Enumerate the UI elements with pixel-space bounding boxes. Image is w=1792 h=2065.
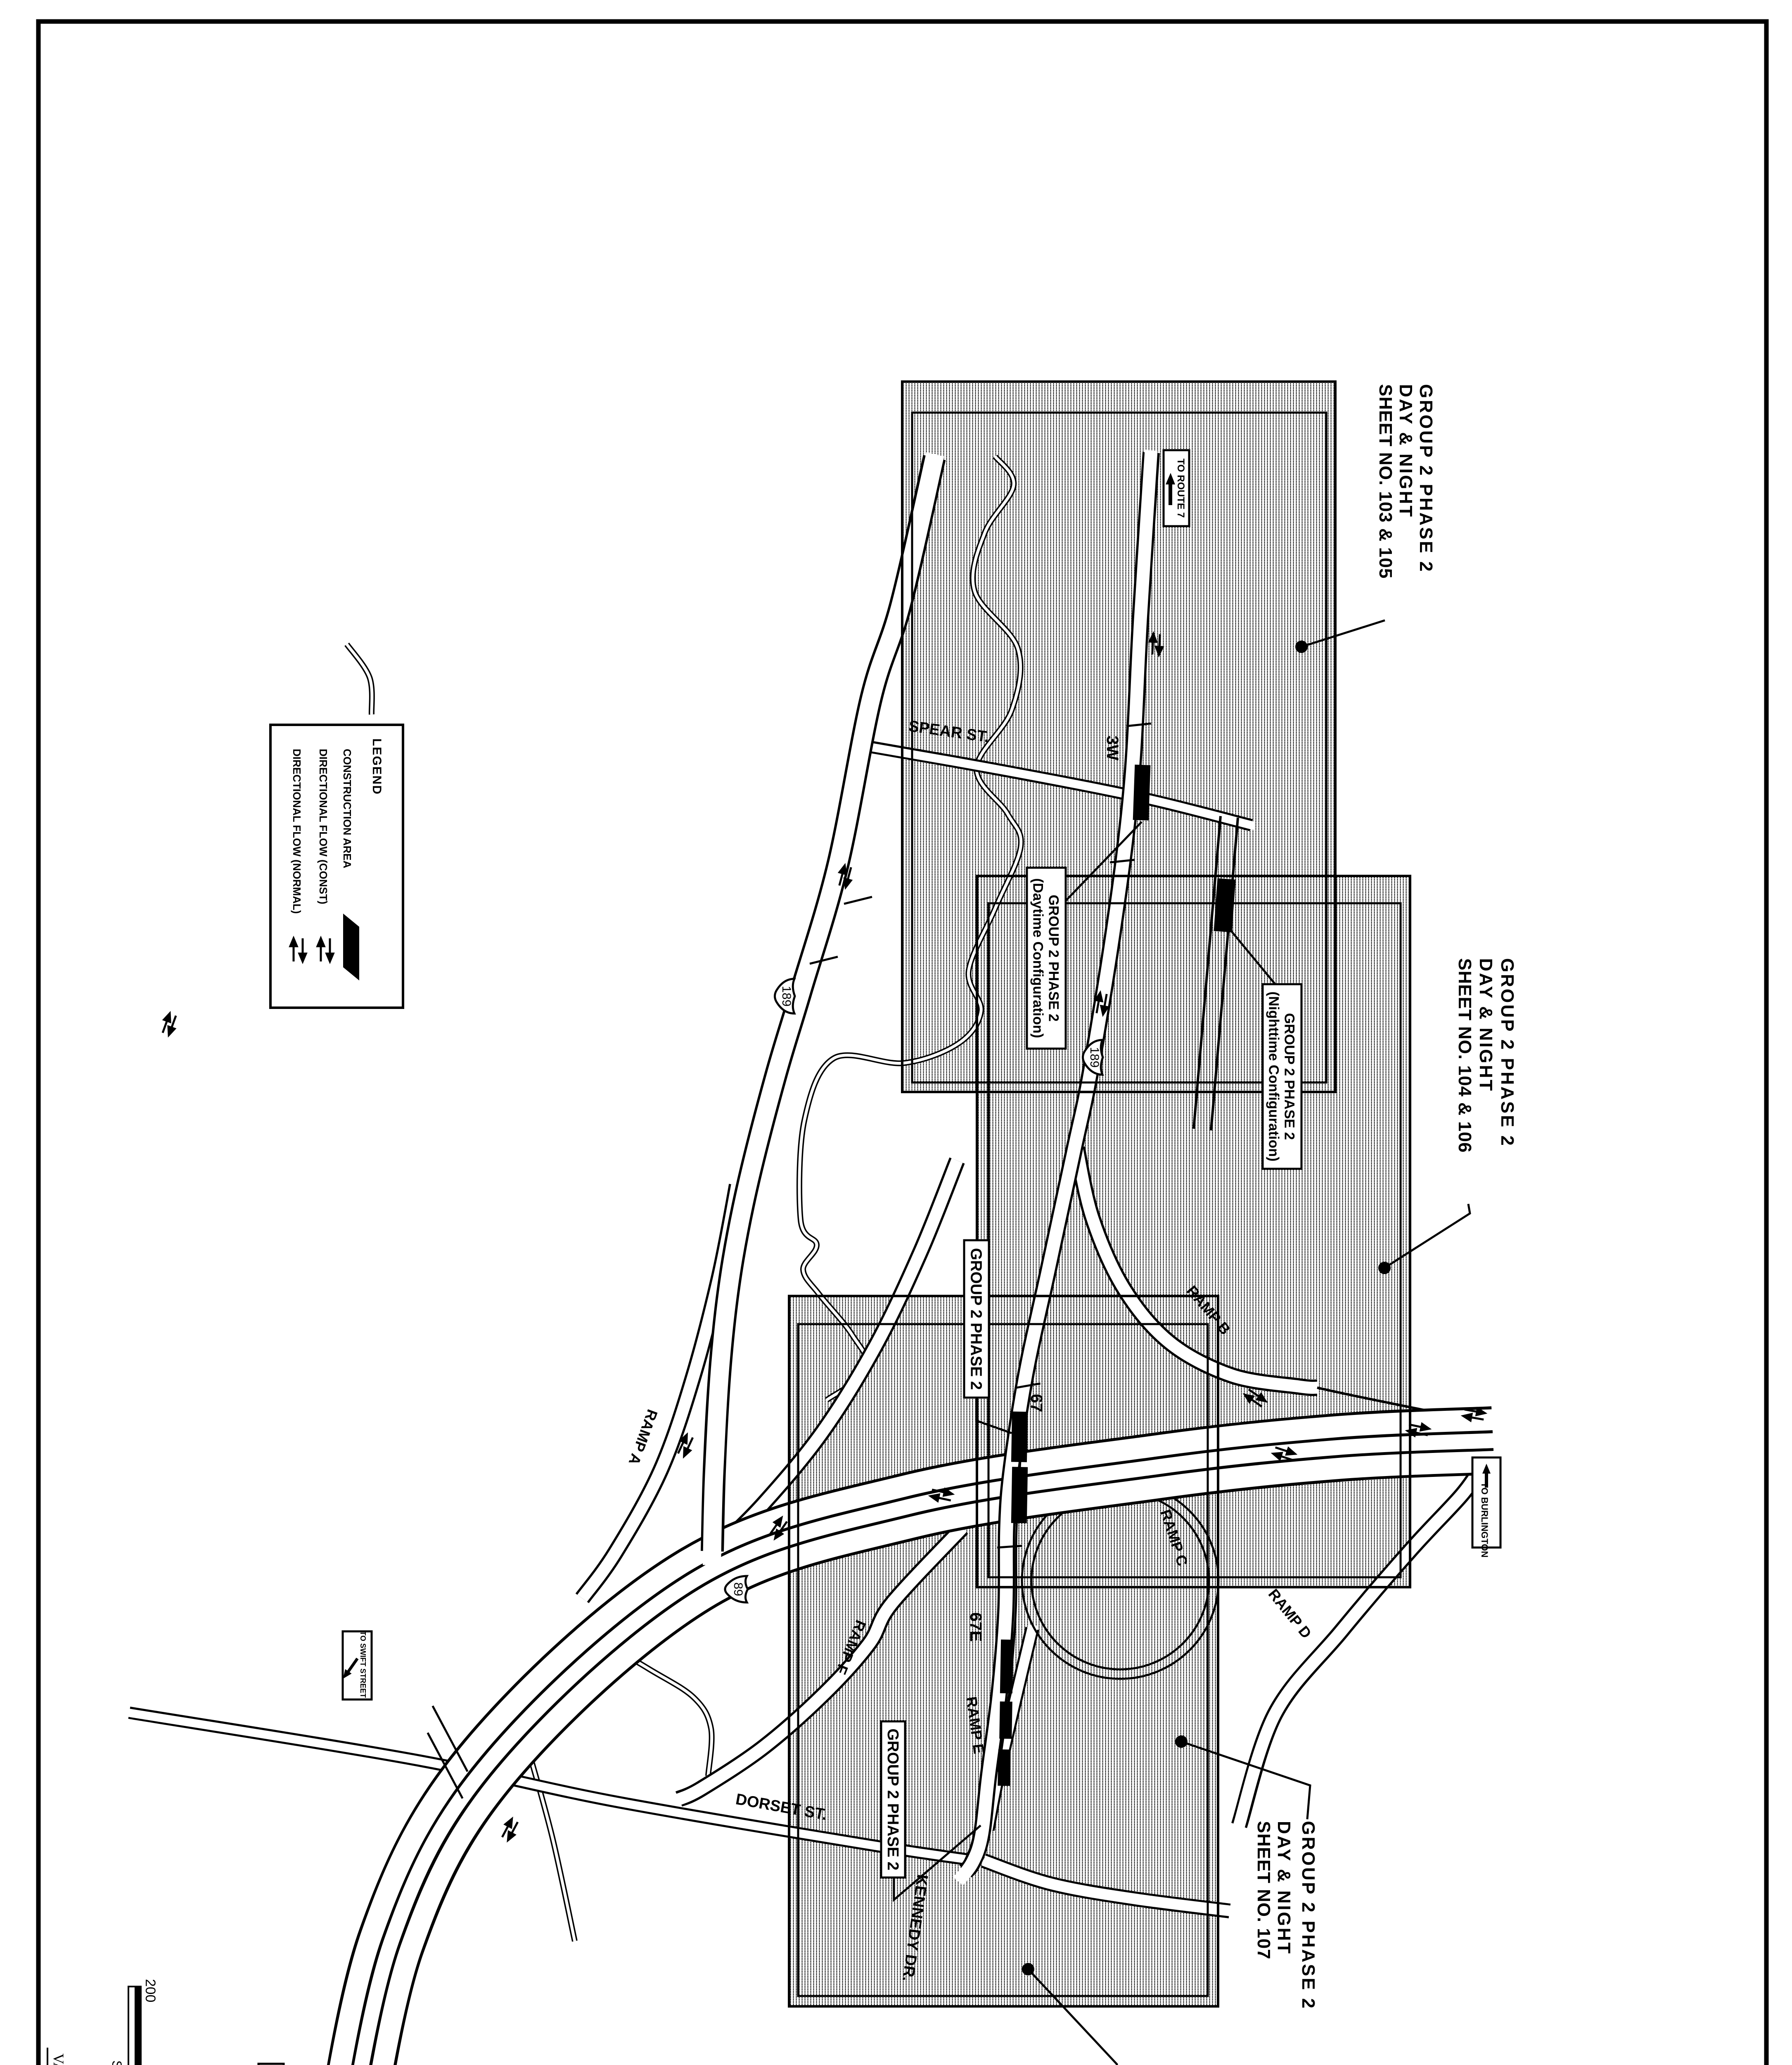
svg-text:DIRECTIONAL FLOW (CONST): DIRECTIONAL FLOW (CONST) — [317, 749, 329, 904]
svg-text:TO BURLINGTON: TO BURLINGTON — [1479, 1482, 1490, 1558]
svg-text:GROUP 2 PHASE 2: GROUP 2 PHASE 2 — [1046, 895, 1062, 1021]
svg-text:GROUP 2 PHASE 2: GROUP 2 PHASE 2 — [1298, 1821, 1318, 2010]
svg-text:DAY & NIGHT: DAY & NIGHT — [1274, 1821, 1294, 1955]
svg-text:SHEET NO. 104 & 106: SHEET NO. 104 & 106 — [1455, 958, 1475, 1153]
svg-text:200: 200 — [142, 1979, 158, 2003]
svg-text:TO SWIFT STREET: TO SWIFT STREET — [359, 1631, 367, 1698]
svg-text:RAMP D: RAMP D — [1265, 1586, 1315, 1642]
svg-text:GROUP 2 PHASE 2: GROUP 2 PHASE 2 — [1497, 958, 1517, 1147]
svg-text:67E: 67E — [967, 1612, 985, 1642]
svg-text:TO ROUTE 7: TO ROUTE 7 — [1175, 458, 1186, 518]
svg-text:DAY & NIGHT: DAY & NIGHT — [1396, 384, 1416, 518]
svg-text:LEGEND: LEGEND — [370, 738, 384, 795]
svg-text:CONSTRUCTION AREA: CONSTRUCTION AREA — [341, 749, 353, 869]
svg-text:(Daytime Configuration): (Daytime Configuration) — [1030, 878, 1045, 1038]
svg-text:VANASSE HANGEN BRUSTLIN, IN: VANASSE HANGEN BRUSTLIN, INC. — [50, 2053, 67, 2065]
svg-text:67: 67 — [1027, 1394, 1045, 1412]
svg-text:DAY & NIGHT: DAY & NIGHT — [1476, 958, 1496, 1092]
svg-text:SCALE IN FEET: SCALE IN FEET — [109, 2060, 124, 2065]
svg-text:3W: 3W — [1103, 736, 1121, 760]
svg-text:GROUP 2 PHASE 2: GROUP 2 PHASE 2 — [884, 1728, 901, 1870]
svg-text:SHEET NO. 107: SHEET NO. 107 — [1254, 1821, 1274, 1960]
svg-text:189: 189 — [780, 986, 793, 1006]
svg-text:RAMP A: RAMP A — [626, 1407, 661, 1467]
svg-text:DIRECTIONAL FLOW (NORMAL): DIRECTIONAL FLOW (NORMAL) — [291, 749, 303, 914]
svg-text:89: 89 — [731, 1582, 745, 1596]
svg-text:(Nighttime Configuration): (Nighttime Configuration) — [1266, 992, 1281, 1162]
svg-text:GROUP 2 PHASE 2: GROUP 2 PHASE 2 — [967, 1248, 985, 1390]
svg-text:SHEET NO. 103 & 105: SHEET NO. 103 & 105 — [1375, 384, 1396, 579]
svg-text:GROUP 2 PHASE 2: GROUP 2 PHASE 2 — [1282, 1013, 1297, 1140]
svg-text:189: 189 — [1088, 1047, 1101, 1068]
svg-text:GROUP 2 PHASE 2: GROUP 2 PHASE 2 — [1416, 384, 1436, 573]
